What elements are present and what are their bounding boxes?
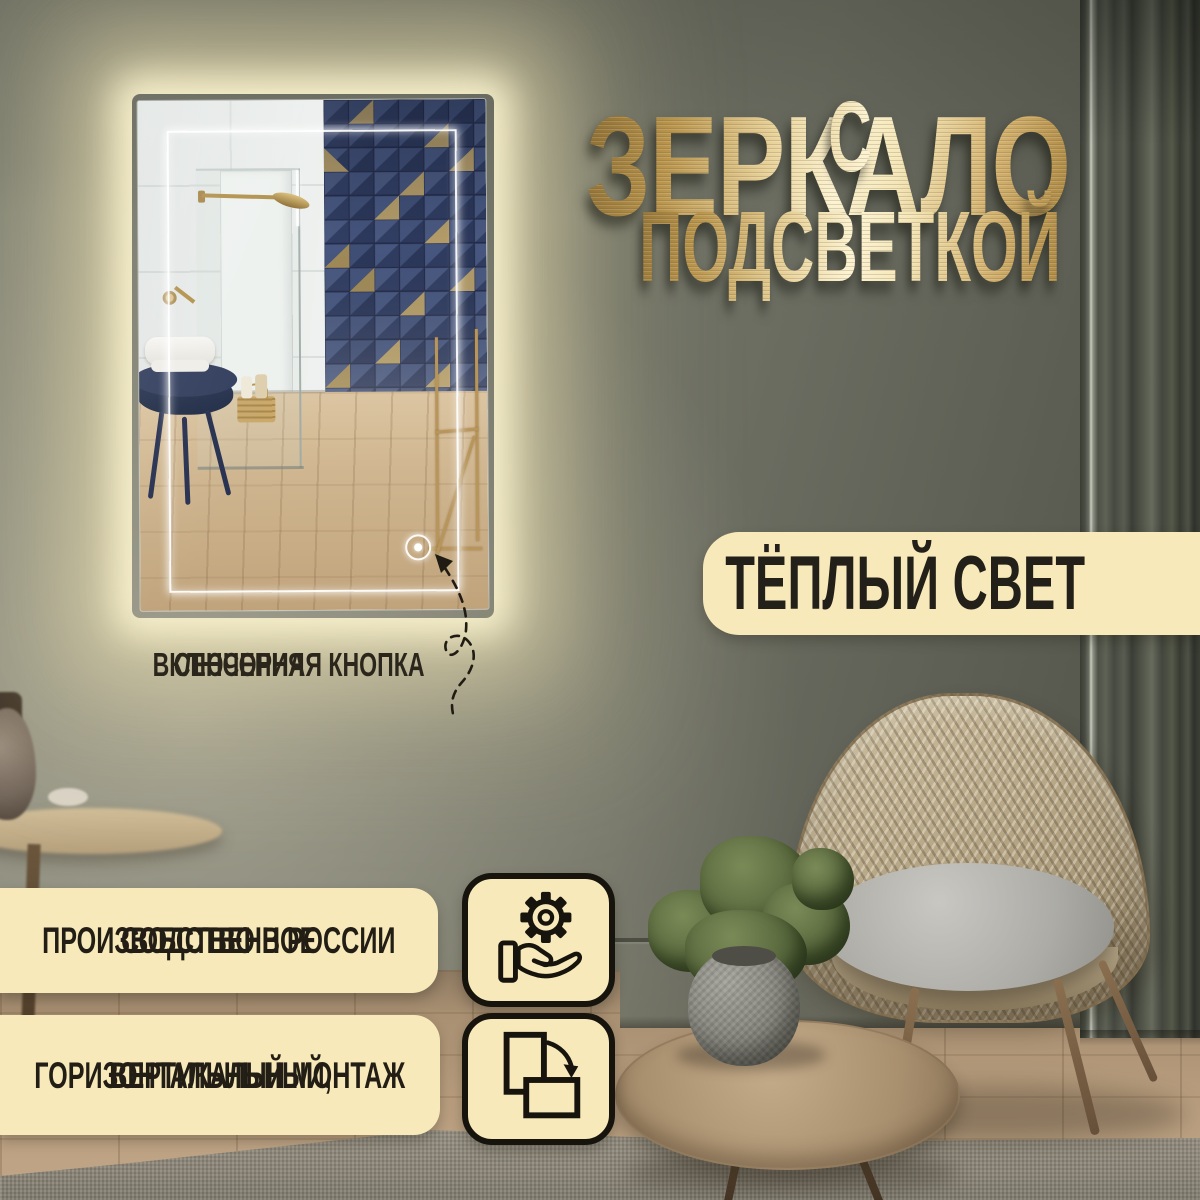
production-icon-tile (462, 873, 615, 1007)
warm-light-badge-label: ТЁПЛЫЙ СВЕТ (726, 540, 1086, 627)
title-line-2: С ПОДСВЕТКОЙ (635, 82, 1065, 302)
badge-mounting: ВЕРТИКАЛЬНЫЙ, ГОРИЗОНТАЛЬНЫЙ МОНТАЖ (0, 1015, 440, 1135)
badge-production-line-2: ПРОИЗВОДСТВО В РОССИИ (42, 919, 395, 962)
badge-mounting-line-2: ГОРИЗОНТАЛЬНЫЙ МОНТАЖ (35, 1054, 406, 1097)
product-banner: ЗЕРКАЛО С ПОДСВЕТКОЙ ТЁПЛЫЙ СВЕТ СЕНСОРН… (0, 0, 1200, 1200)
badge-production: СОБСТВЕННОЕ ПРОИЗВОДСТВО В РОССИИ (0, 888, 438, 993)
warm-light-badge: ТЁПЛЫЙ СВЕТ (703, 532, 1200, 635)
bowl (48, 788, 88, 806)
mounting-icon-tile (462, 1013, 615, 1145)
plant-pot-mouth (712, 946, 776, 966)
vase (0, 708, 36, 820)
portrait-landscape-rotation-icon (483, 1025, 595, 1133)
arrowhead (435, 554, 453, 573)
mirror-sheen (137, 99, 488, 611)
touch-button-arrow (420, 540, 520, 735)
gear-in-hand-icon (483, 886, 595, 994)
mirror (137, 99, 488, 611)
caption-line-2: ВКЛЮЧЕНИЯ (153, 642, 305, 688)
